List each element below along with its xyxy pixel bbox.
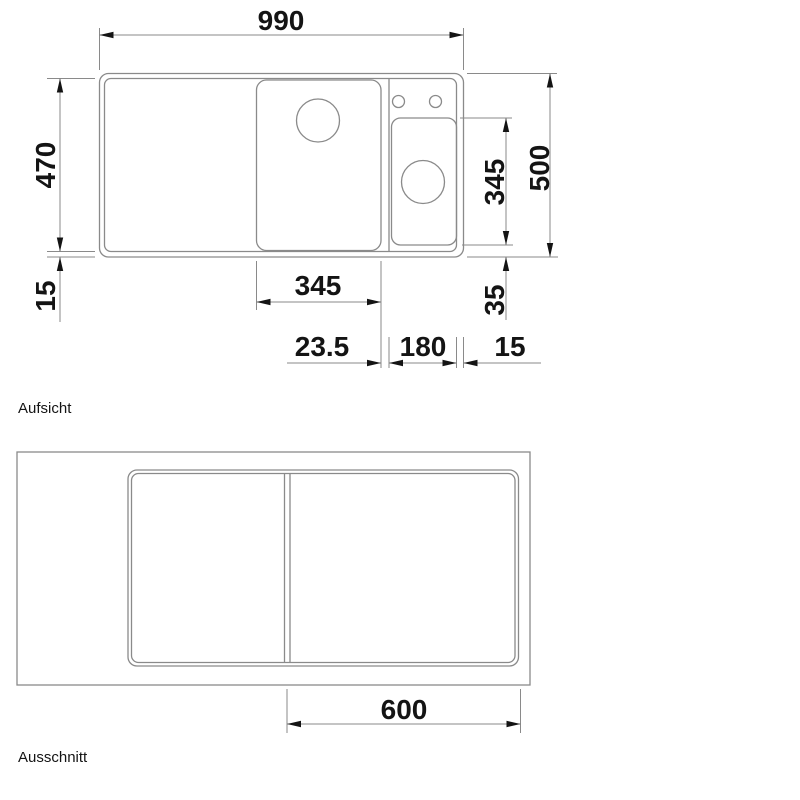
arrow-left — [287, 721, 301, 727]
dim-label-470: 470 — [30, 142, 61, 189]
main-bowl — [257, 80, 382, 251]
arrow-right — [367, 299, 381, 305]
dim-label-345-right: 345 — [479, 159, 510, 206]
dim-cut-segment-600: 600 — [287, 689, 521, 733]
arrow-up — [57, 79, 63, 93]
main-bowl-drain — [297, 99, 340, 142]
arrow-up — [57, 257, 63, 271]
dim-label-500: 500 — [524, 145, 555, 192]
dim-rim-right-border-15: 15 — [464, 331, 542, 368]
drawing-page: 990 470 15 345 — [0, 0, 800, 800]
top-view: 990 470 15 345 — [18, 5, 558, 417]
top-view-label: Aufsicht — [18, 400, 72, 417]
arrow-down — [503, 231, 509, 245]
tap-hole-left — [393, 96, 405, 108]
arrow-up — [547, 74, 553, 88]
arrow-right — [367, 360, 381, 366]
small-bowl-drain — [402, 161, 445, 204]
cutout-view: 600 Ausschnitt — [17, 452, 530, 766]
tap-hole-right — [430, 96, 442, 108]
sink-technical-drawing: 990 470 15 345 — [0, 0, 800, 800]
cutout-inner-outline — [132, 474, 516, 663]
arrow-down — [547, 243, 553, 257]
dim-label-345-bottom: 345 — [295, 270, 342, 301]
arrow-right — [507, 721, 521, 727]
dim-rim-depth-470: 470 — [30, 79, 95, 252]
arrow-down — [57, 238, 63, 252]
dim-label-180: 180 — [400, 331, 447, 362]
dim-rim-front-border-15: 15 — [30, 257, 95, 322]
dim-label-600: 600 — [381, 694, 428, 725]
dim-bowl-spacing-23-5: 23.5 — [287, 331, 381, 366]
arrow-left — [100, 32, 114, 38]
dim-small-bowl-front-offset-35: 35 — [479, 257, 510, 320]
cutout-outer-outline — [128, 470, 519, 666]
dim-label-990: 990 — [258, 5, 305, 36]
dim-label-23-5: 23.5 — [295, 331, 350, 362]
arrow-right — [450, 32, 464, 38]
arrow-up — [503, 118, 509, 132]
dim-label-15-left: 15 — [30, 280, 61, 311]
arrow-left — [464, 360, 478, 366]
dim-small-bowl-width-180: 180 — [389, 331, 457, 368]
dim-label-15-right: 15 — [494, 331, 525, 362]
cutout-view-label: Ausschnitt — [18, 749, 88, 766]
arrow-left — [257, 299, 271, 305]
dim-label-35: 35 — [479, 284, 510, 315]
arrow-up — [503, 257, 509, 271]
dim-small-bowl-depth-345: 345 — [460, 118, 513, 245]
countertop-outline — [17, 452, 530, 685]
dim-overall-width-990: 990 — [100, 5, 464, 70]
